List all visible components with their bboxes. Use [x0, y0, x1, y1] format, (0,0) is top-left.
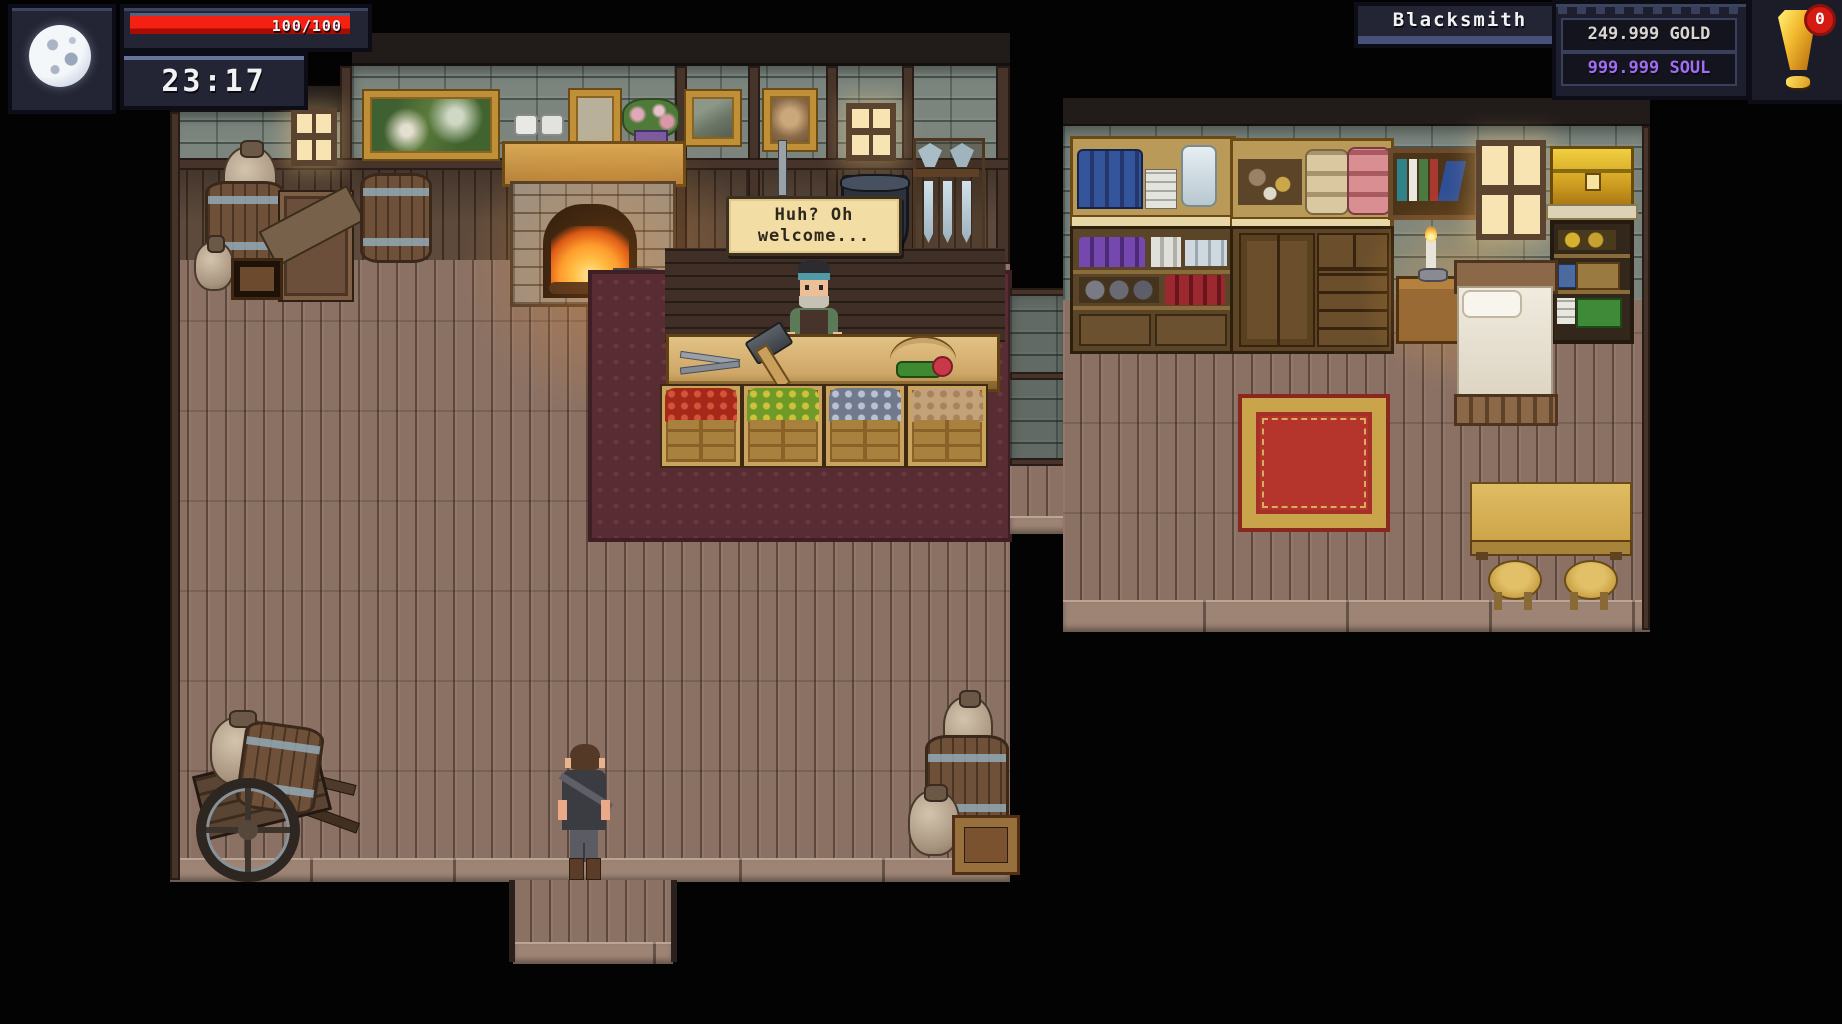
window: [846, 103, 896, 161]
right-room-roof-edge: [1063, 98, 1650, 128]
mantel-cups: [514, 114, 538, 136]
blue-bottles: [1077, 149, 1143, 209]
barrel-corner-group: [900, 692, 1020, 877]
chest-lock: [1585, 173, 1601, 191]
exit-corridor-side: [509, 880, 515, 962]
gold-items: [1558, 230, 1616, 250]
cabinet-doors: [1239, 233, 1315, 347]
dining-table: [1470, 482, 1628, 558]
shop-crate-green-produce[interactable]: [742, 384, 824, 468]
sword-blade-icon: [943, 181, 952, 243]
notification-panel: 0: [1748, 0, 1842, 104]
dialogue-line: Huh? Oh: [775, 205, 854, 226]
notification-badge-count: 0: [1807, 9, 1833, 28]
player-jacket: [562, 770, 606, 830]
npc-headband: [798, 273, 830, 280]
notification-badge: 0: [1804, 4, 1836, 36]
landscape-painting: [364, 91, 498, 159]
barrel: [360, 173, 432, 263]
portrait-painting: [686, 91, 740, 145]
smith-hammer: [742, 326, 798, 386]
bed: [1454, 260, 1552, 420]
moon-phase-panel: [8, 4, 116, 114]
tongs: [680, 352, 742, 374]
golden-chest: [1550, 146, 1634, 210]
panel-crenellation: [1558, 6, 1744, 14]
window: [1476, 140, 1546, 240]
cabinet-drawers: [1317, 269, 1389, 347]
right-room-floor-edge: [1063, 600, 1650, 632]
hand-cart: [190, 700, 380, 870]
red-gold-rug: [1238, 394, 1390, 532]
shelf-sundries: [1238, 159, 1302, 205]
player-ear: [565, 758, 571, 768]
book: [1438, 161, 1467, 201]
player-boot: [586, 858, 601, 880]
shop-crate-roots[interactable]: [906, 384, 988, 468]
small-open-crate: [952, 815, 1020, 875]
passage-beam: [1010, 458, 1066, 466]
bookshelf: [1388, 148, 1480, 220]
health-bar-label: 100/100: [272, 17, 342, 35]
currency-panel: 249.999 GOLD 999.999 SOUL: [1552, 0, 1750, 100]
red-bottles: [1165, 275, 1225, 305]
book: [1430, 159, 1438, 201]
bed-footboard: [1454, 394, 1558, 426]
book: [1419, 159, 1428, 201]
green-chest: [1576, 298, 1622, 328]
player-hand: [601, 800, 610, 820]
window: [291, 108, 337, 166]
passage-floor-edge: [1010, 516, 1066, 534]
purple-potions: [1079, 237, 1145, 267]
left-room-roof-edge: [352, 33, 1010, 67]
cart-wheel: [196, 778, 300, 882]
cloth-rolls-tan: [1305, 149, 1349, 215]
left-room-west-edge: [170, 112, 180, 880]
shop-crate-red-produce[interactable]: [660, 384, 742, 468]
passage-beam: [1010, 288, 1066, 296]
portrait-painting: [764, 90, 816, 150]
book: [1397, 159, 1407, 201]
passage-floor[interactable]: [1010, 466, 1066, 518]
moon-icon: [29, 25, 91, 87]
white-dishes: [1145, 169, 1177, 209]
exit-corridor-edge: [513, 942, 673, 964]
health-bar: 100/100: [120, 4, 372, 52]
axe-icon: [950, 143, 974, 167]
npc-eye: [805, 285, 809, 290]
gold-amount: 249.999 GOLD: [1563, 24, 1735, 44]
small-open-crate: [231, 258, 283, 300]
white-jars: [1151, 237, 1181, 267]
book: [1409, 159, 1417, 201]
white-papers: [1557, 298, 1575, 324]
dialogue-bubble[interactable]: Huh? Oh welcome...: [726, 196, 902, 256]
exit-corridor-side: [671, 880, 677, 962]
player-character[interactable]: [560, 742, 608, 882]
sword-blade-icon: [962, 181, 971, 243]
passage-beam: [1010, 372, 1066, 380]
clock-panel: 23:17: [120, 52, 308, 110]
player-ear: [599, 758, 605, 768]
health-bar-fill: 100/100: [130, 16, 350, 34]
jug: [194, 241, 234, 291]
gold-row: 249.999 GOLD: [1561, 18, 1737, 52]
drawer: [1155, 314, 1227, 346]
dialogue-line: welcome...: [758, 226, 870, 247]
location-label-panel: Blacksmith: [1354, 2, 1566, 48]
bed-pillow: [1462, 290, 1522, 318]
shop-crate-ore[interactable]: [824, 384, 906, 468]
right-room-east-edge: [1642, 126, 1650, 630]
hanging-poker: [778, 140, 787, 196]
cabinet-small-doors: [1317, 233, 1389, 269]
potion-shelf-lower: [1070, 226, 1236, 354]
chest-shelf-board: [1546, 204, 1638, 220]
soul-amount: 999.999 SOUL: [1563, 58, 1735, 78]
player-hair: [570, 744, 600, 770]
blue-jar: [1558, 264, 1576, 288]
npc-eye: [819, 285, 823, 290]
player-boot: [569, 858, 584, 880]
clock-time: 23:17: [124, 64, 304, 99]
axe-icon: [918, 143, 942, 167]
soul-row: 999.999 SOUL: [1561, 52, 1737, 86]
cloth-rolls-pink: [1347, 147, 1391, 215]
candle-flame: [1425, 226, 1437, 242]
weapon-rack: [913, 138, 985, 266]
cloth-cabinet-lower: [1230, 226, 1394, 354]
potion-shelf-upper: [1070, 136, 1236, 230]
glass-jars: [1185, 240, 1227, 266]
stool: [1564, 560, 1614, 612]
location-label: Blacksmith: [1358, 9, 1562, 31]
glass-jar: [1181, 145, 1217, 207]
mantel-cups: [540, 114, 564, 136]
storage-box: [1576, 262, 1620, 290]
player-hand: [558, 800, 567, 820]
drawer: [1079, 314, 1151, 346]
cloth-shelf-upper: [1230, 138, 1394, 232]
exit-corridor-floor[interactable]: [513, 880, 673, 944]
game-viewport[interactable]: Huh? Oh welcome... 100/100 23:17 Blacksm…: [0, 0, 1842, 1024]
storage-shelf: [1550, 220, 1634, 344]
candle: [1418, 226, 1444, 278]
stool: [1488, 560, 1538, 612]
kettles: [1079, 277, 1159, 303]
exclamation-icon[interactable]: 0: [1768, 8, 1832, 96]
herb-bundle: [896, 356, 950, 382]
sword-blade-icon: [924, 181, 933, 243]
